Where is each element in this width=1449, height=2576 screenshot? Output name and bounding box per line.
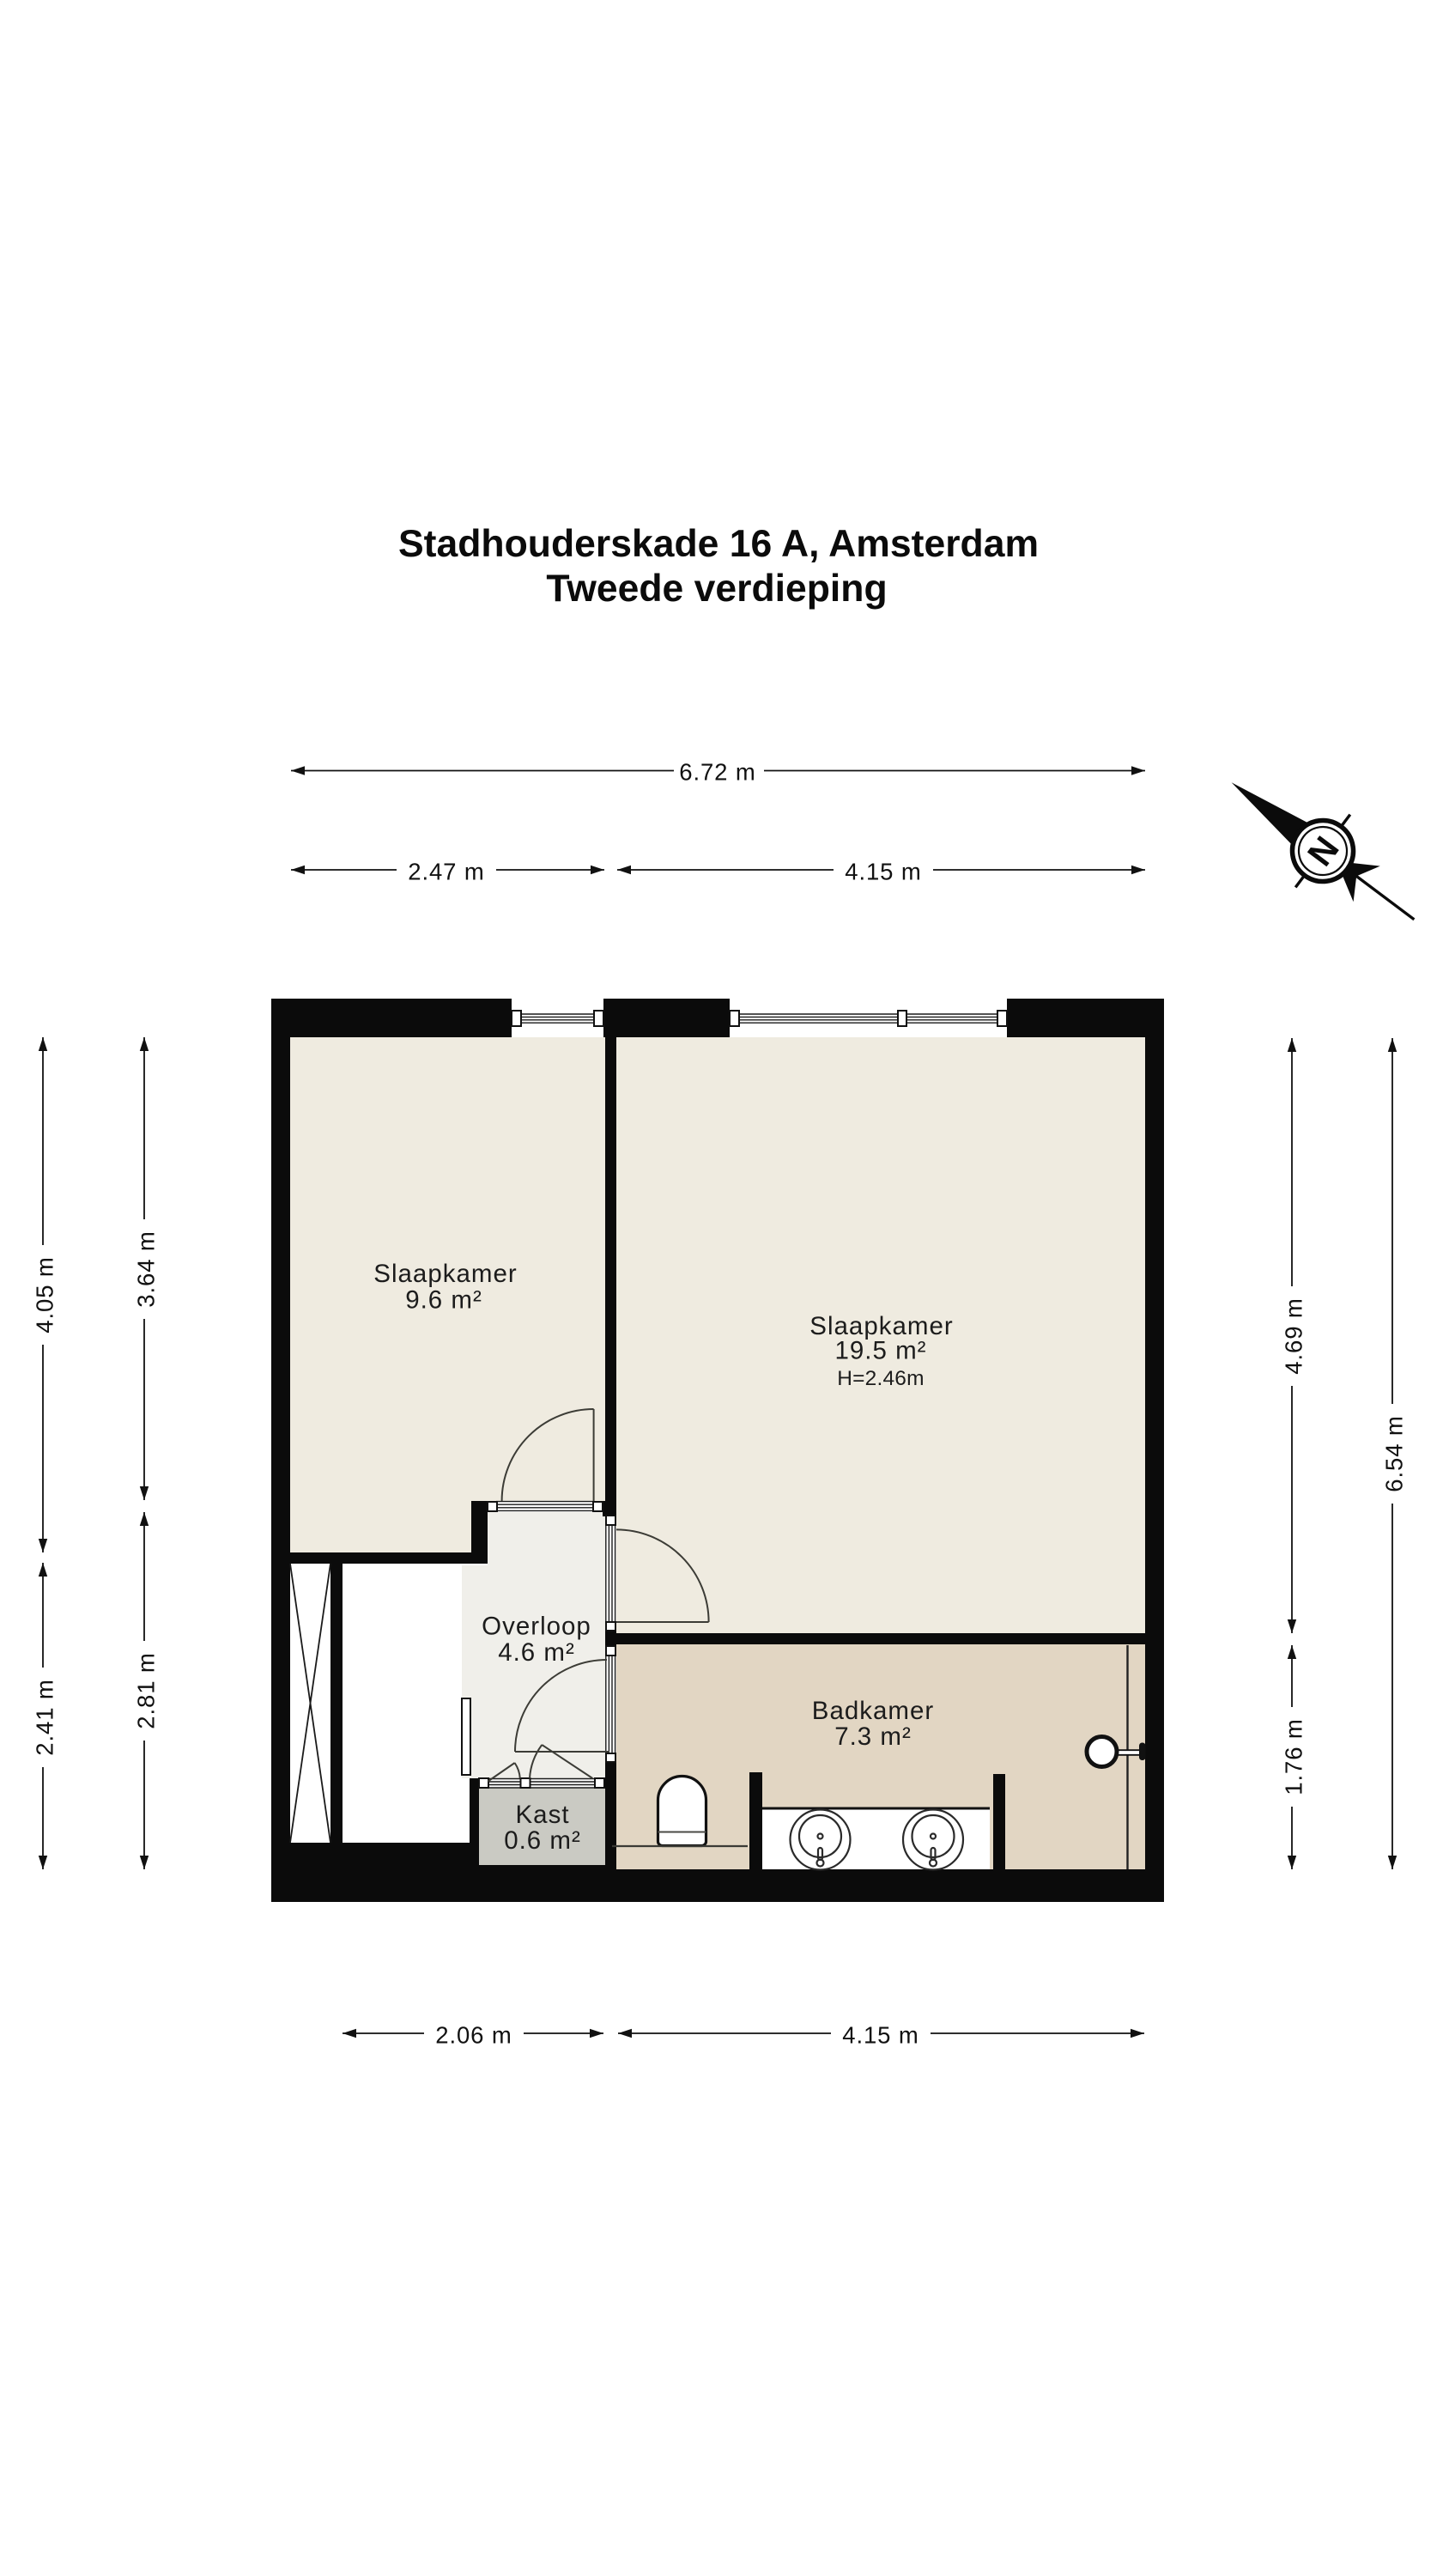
svg-text:H=2.46m: H=2.46m (837, 1367, 925, 1390)
svg-text:2.81 m: 2.81 m (133, 1652, 160, 1728)
svg-text:3.64 m: 3.64 m (133, 1230, 160, 1307)
svg-text:0.6 m²: 0.6 m² (504, 1826, 581, 1855)
svg-text:19.5 m²: 19.5 m² (834, 1337, 926, 1365)
svg-text:6.72 m: 6.72 m (679, 759, 755, 786)
svg-text:1.76 m: 1.76 m (1281, 1718, 1307, 1795)
svg-text:Tweede verdieping: Tweede verdieping (546, 568, 887, 610)
svg-text:2.06 m: 2.06 m (435, 2022, 512, 2049)
svg-text:4.15 m: 4.15 m (842, 2022, 919, 2049)
svg-text:4.69 m: 4.69 m (1281, 1297, 1307, 1374)
svg-text:Overloop: Overloop (482, 1613, 591, 1641)
svg-text:2.41 m: 2.41 m (32, 1679, 58, 1755)
svg-text:4.15 m: 4.15 m (845, 859, 921, 885)
svg-text:4.05 m: 4.05 m (32, 1256, 58, 1333)
svg-text:9.6 m²: 9.6 m² (405, 1286, 482, 1315)
svg-text:Slaapkamer: Slaapkamer (373, 1260, 517, 1288)
svg-text:6.54 m: 6.54 m (1381, 1415, 1408, 1492)
svg-text:7.3 m²: 7.3 m² (834, 1722, 912, 1751)
svg-text:Badkamer: Badkamer (812, 1697, 934, 1725)
svg-text:Stadhouderskade 16 A, Amsterda: Stadhouderskade 16 A, Amsterdam (398, 523, 1039, 565)
svg-text:Kast: Kast (515, 1801, 569, 1829)
svg-text:2.47 m: 2.47 m (408, 859, 484, 885)
svg-text:4.6 m²: 4.6 m² (498, 1638, 575, 1667)
